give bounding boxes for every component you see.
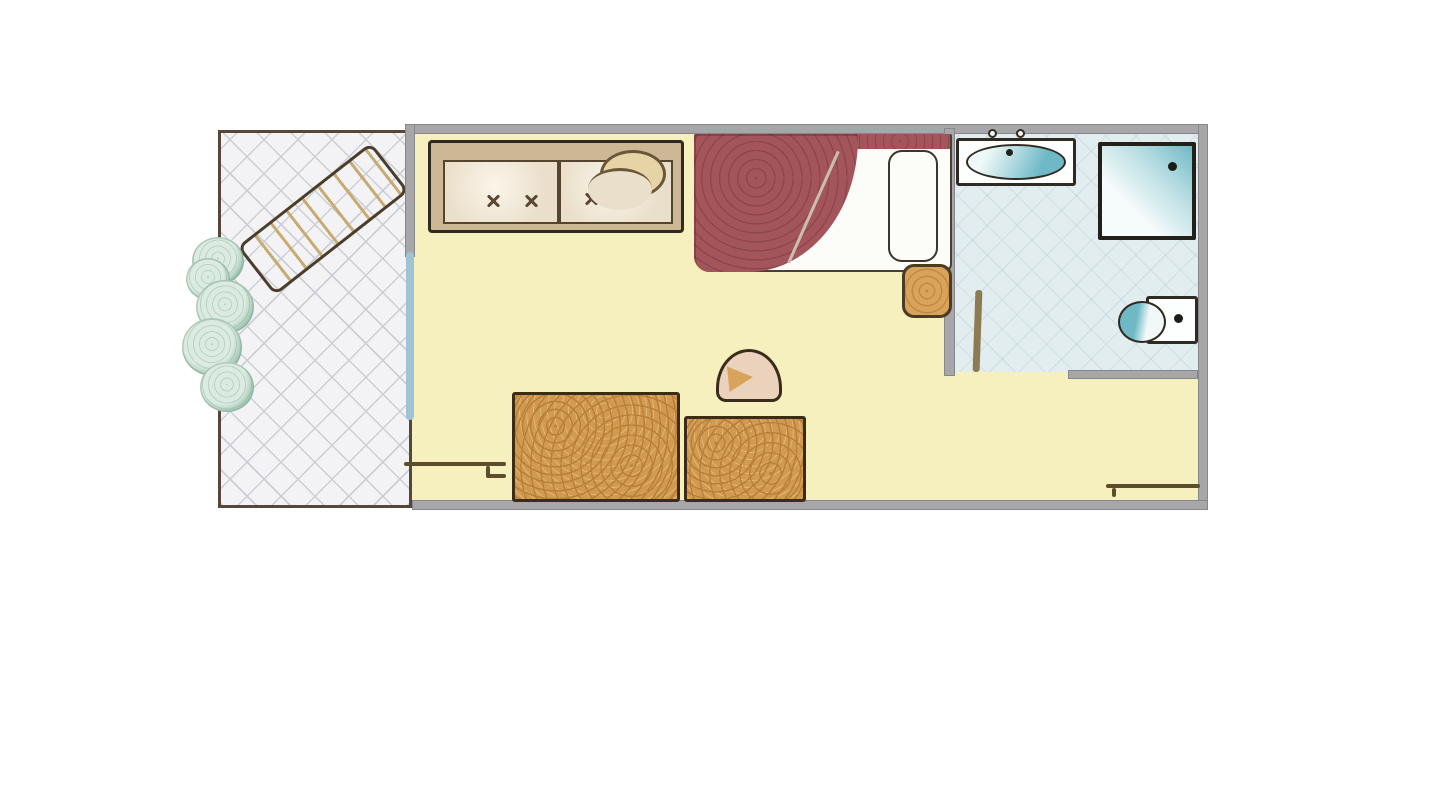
floor-plan bbox=[0, 0, 1440, 788]
plant bbox=[200, 362, 254, 412]
tuft-x-icon bbox=[485, 193, 501, 209]
toilet-bowl bbox=[1118, 301, 1166, 343]
wall-left-segment bbox=[405, 124, 415, 257]
threshold-line-left bbox=[404, 462, 506, 466]
bed-cover-edge bbox=[850, 134, 950, 149]
shower bbox=[1098, 142, 1196, 240]
wall-right bbox=[1198, 124, 1208, 510]
nightstand bbox=[902, 264, 952, 318]
table-small bbox=[684, 416, 806, 502]
drain-icon bbox=[1006, 149, 1013, 156]
sink-basin bbox=[966, 144, 1066, 180]
wall-top bbox=[406, 124, 1208, 134]
bathroom-wall-bottom bbox=[1068, 370, 1198, 379]
shower-drain-icon bbox=[1168, 162, 1177, 171]
table-large bbox=[512, 392, 680, 502]
sofa-throw-pillow-cut bbox=[588, 168, 652, 210]
threshold-hook bbox=[486, 474, 506, 478]
balcony-glass-door bbox=[406, 252, 414, 420]
threshold-hook bbox=[1112, 488, 1116, 497]
flush-button-icon bbox=[1174, 314, 1183, 323]
sofa-cushion-left bbox=[443, 160, 559, 224]
tuft-x-icon bbox=[523, 193, 539, 209]
faucet-icon bbox=[1016, 129, 1025, 138]
faucet-icon bbox=[988, 129, 997, 138]
threshold-line-right bbox=[1106, 484, 1200, 488]
bed-pillow bbox=[888, 150, 938, 262]
stool-shading bbox=[727, 362, 753, 392]
